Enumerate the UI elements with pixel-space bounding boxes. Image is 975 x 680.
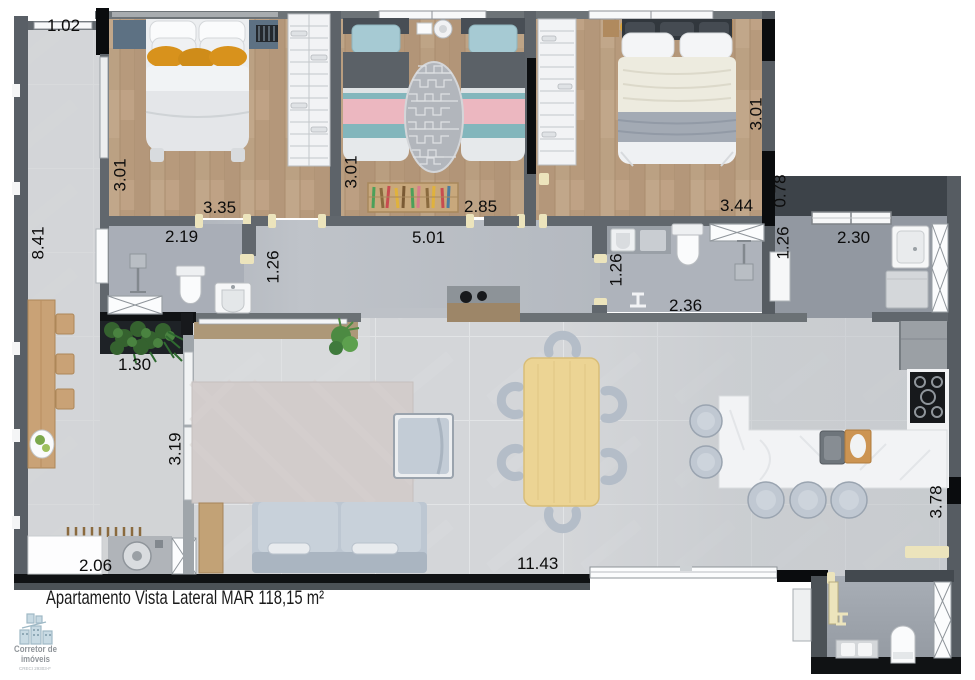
svg-text:1.02: 1.02 bbox=[47, 16, 80, 35]
svg-text:11.43: 11.43 bbox=[517, 554, 558, 573]
svg-text:3.19: 3.19 bbox=[165, 432, 184, 465]
svg-text:2.36: 2.36 bbox=[669, 296, 702, 315]
svg-text:1.26: 1.26 bbox=[773, 226, 792, 259]
svg-text:1.26: 1.26 bbox=[263, 250, 282, 283]
svg-text:imóveis: imóveis bbox=[21, 654, 50, 665]
svg-text:2.30: 2.30 bbox=[837, 228, 870, 247]
svg-text:2.06: 2.06 bbox=[79, 556, 112, 575]
svg-text:3.01: 3.01 bbox=[341, 155, 360, 188]
svg-text:2.19: 2.19 bbox=[165, 227, 198, 246]
svg-text:3.01: 3.01 bbox=[746, 97, 765, 130]
svg-text:1.26: 1.26 bbox=[606, 253, 625, 286]
svg-text:1.30: 1.30 bbox=[118, 355, 151, 374]
svg-text:5.01: 5.01 bbox=[412, 228, 445, 247]
svg-text:3.78: 3.78 bbox=[926, 485, 945, 518]
svg-text:CRECI 29303-F: CRECI 29303-F bbox=[19, 666, 51, 671]
svg-text:3.35: 3.35 bbox=[203, 198, 236, 217]
svg-text:3.44: 3.44 bbox=[720, 196, 753, 215]
svg-text:Apartamento Vista Lateral MAR: Apartamento Vista Lateral MAR 118,15 m² bbox=[46, 587, 324, 609]
svg-text:2.85: 2.85 bbox=[464, 197, 497, 216]
svg-text:8.41: 8.41 bbox=[28, 226, 47, 259]
svg-text:3.01: 3.01 bbox=[110, 158, 129, 191]
svg-text:0.78: 0.78 bbox=[770, 174, 789, 207]
